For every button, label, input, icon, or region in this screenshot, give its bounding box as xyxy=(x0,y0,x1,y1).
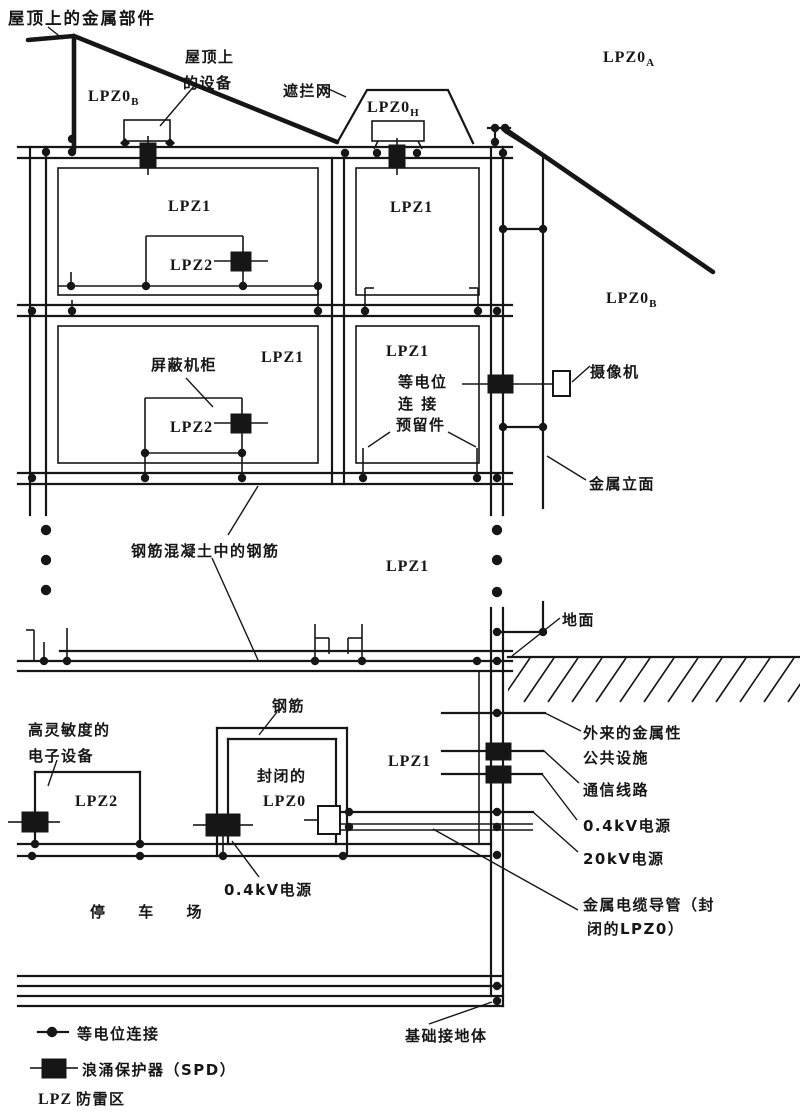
zone-lpz0b-left: LPZ0B xyxy=(88,88,139,108)
legend-spd-label: 浪涌保护器（SPD） xyxy=(82,1061,236,1079)
shield-net-trapezoid xyxy=(337,90,473,143)
legend-bonding-symbol xyxy=(38,1027,68,1037)
label-bonding-reserved-l3: 预留件 xyxy=(396,416,446,434)
legend-spd-symbol xyxy=(30,1059,78,1078)
label-external-utility-l2: 公共设施 xyxy=(583,749,649,767)
zone-lpz1-floor1-left: LPZ1 xyxy=(168,198,211,215)
legend-bonding-label: 等电位连接 xyxy=(77,1025,160,1043)
zone-lpz1-floor1-right: LPZ1 xyxy=(390,199,433,216)
leader-lines xyxy=(48,27,590,1024)
labels: 屋顶上的金属部件 屋顶上 的设备 遮拦网 LPZ0B LPZ0H LPZ0A L… xyxy=(8,8,715,1045)
building-structure xyxy=(18,126,512,1006)
legend: 等电位连接 浪涌保护器（SPD） LPZ 防雷区 xyxy=(30,1025,236,1108)
spd-lpz2-floor2 xyxy=(214,414,268,433)
camera-box xyxy=(553,371,570,396)
spd-roof-net xyxy=(389,138,405,175)
label-conduit-l2: 闭的LPZ0） xyxy=(587,920,684,938)
label-power-20: 20kV电源 xyxy=(583,850,664,868)
spd-basement-lpz2 xyxy=(8,812,60,832)
label-roof-equipment-l1: 屋顶上 xyxy=(185,48,235,66)
label-foundation-earth: 基础接地体 xyxy=(404,1027,488,1045)
roof-equipment-box-net xyxy=(372,121,424,141)
label-rebar: 钢筋 xyxy=(272,697,305,715)
zone-lpz2-basement: LPZ2 xyxy=(75,793,118,810)
zone-lpz0a: LPZ0A xyxy=(603,49,655,69)
cable-entry-box xyxy=(318,806,340,834)
label-metal-facade: 金属立面 xyxy=(588,475,655,493)
legend-lpz-abbr: LPZ xyxy=(38,1091,72,1108)
spd-camera-wall xyxy=(462,375,553,393)
label-conduit-l1: 金属电缆导管（封 xyxy=(582,896,715,914)
spd-utility-power xyxy=(486,766,511,783)
label-power-04-bottom: 0.4kV电源 xyxy=(224,881,313,899)
label-bonding-reserved-l2: 连 接 xyxy=(398,395,438,413)
label-comm-line: 通信线路 xyxy=(583,781,649,799)
label-enclosed-l1: 封闭的 xyxy=(257,767,307,785)
spd-utility-comm xyxy=(486,743,511,760)
ground-hatch xyxy=(476,602,800,702)
lpz-diagram-page: 屋顶上的金属部件 屋顶上 的设备 遮拦网 LPZ0B LPZ0H LPZ0A L… xyxy=(0,0,800,1117)
utility-lines xyxy=(338,713,545,830)
label-high-sensitivity-l1: 高灵敏度的 xyxy=(28,721,111,739)
spd-enclosed-lpz0 xyxy=(193,814,253,856)
label-power-04-right: 0.4kV电源 xyxy=(583,817,672,835)
zone-lpz1-floor2-right: LPZ1 xyxy=(386,343,429,360)
spd-lpz2-floor1 xyxy=(214,252,268,271)
zone-lpz0b-right: LPZ0B xyxy=(606,290,657,310)
label-shielded-cabinet: 屏蔽机柜 xyxy=(151,356,217,374)
zone-lpz1-floor2-left: LPZ1 xyxy=(261,349,304,366)
label-high-sensitivity-l2: 电子设备 xyxy=(28,747,94,765)
label-shield-net: 遮拦网 xyxy=(283,82,333,100)
label-external-utility-l1: 外来的金属性 xyxy=(582,724,682,742)
label-rebar-in-concrete: 钢筋混凝土中的钢筋 xyxy=(131,542,280,560)
air-termination-conductors xyxy=(28,36,713,272)
zone-lpz2-floor2: LPZ2 xyxy=(170,419,213,436)
spd-roof-left xyxy=(140,136,156,175)
label-bonding-reserved-l1: 等电位 xyxy=(398,373,448,391)
label-enclosed-l2: LPZ0 xyxy=(263,793,306,810)
label-roof-metal: 屋顶上的金属部件 xyxy=(8,8,156,28)
legend-lpz-label: 防雷区 xyxy=(76,1090,126,1108)
metal-facade-line xyxy=(503,132,543,508)
bonding-dots xyxy=(28,124,547,1005)
label-roof-equipment-l2: 的设备 xyxy=(183,74,233,92)
zone-lpz1-mid: LPZ1 xyxy=(386,558,429,575)
zone-lpz0h: LPZ0H xyxy=(367,99,420,119)
label-ground: 地面 xyxy=(562,611,595,629)
label-parking: 停 车 场 xyxy=(90,903,215,921)
zone-lpz1-basement: LPZ1 xyxy=(388,753,431,770)
lpz-diagram: 屋顶上的金属部件 屋顶上 的设备 遮拦网 LPZ0B LPZ0H LPZ0A L… xyxy=(0,0,800,1117)
label-camera: 摄像机 xyxy=(590,363,640,381)
zone-lpz2-floor1: LPZ2 xyxy=(170,257,213,274)
